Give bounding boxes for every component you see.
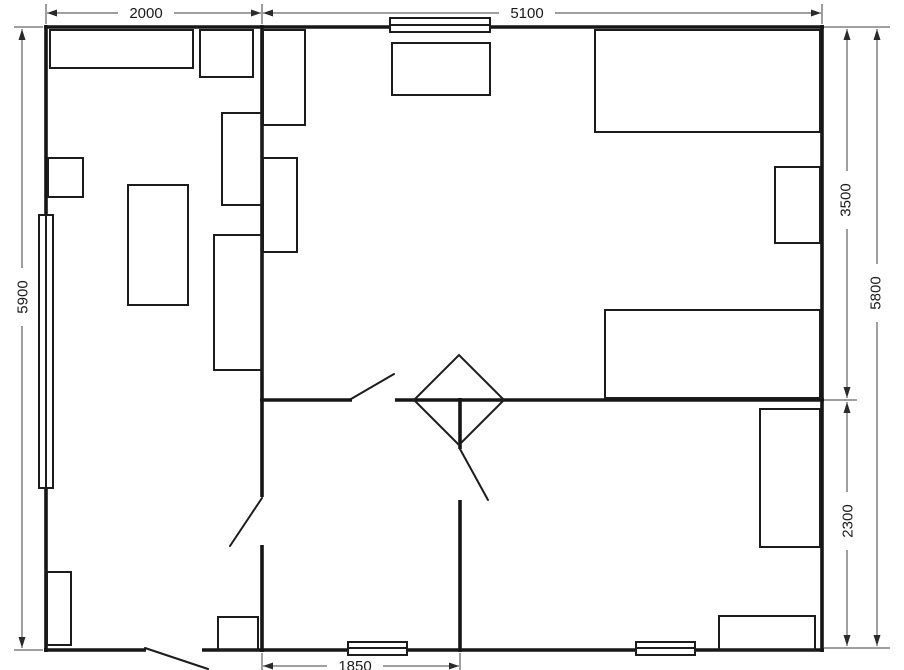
dimension-label-right-upper: 3500	[838, 183, 855, 216]
furniture-rect	[605, 310, 820, 398]
furniture-rect	[48, 158, 83, 197]
furniture-rect	[47, 572, 71, 645]
arrowhead	[47, 10, 57, 17]
dimension-label-bottom: 1850	[338, 658, 371, 670]
arrowhead	[874, 635, 881, 646]
door-leaf-entrance	[145, 648, 208, 669]
furniture-rect	[263, 158, 297, 252]
windows	[39, 18, 695, 655]
floor-plan-canvas: 2000 5100 5900 3500 2300 5800 1850	[0, 0, 904, 670]
furniture-rect	[218, 617, 258, 650]
arrowhead	[844, 387, 851, 398]
dimensions: 2000 5100 5900 3500 2300 5800 1850	[14, 4, 890, 670]
arrowhead	[844, 402, 851, 413]
arrowhead	[844, 29, 851, 40]
dimension-label-top-left: 2000	[129, 5, 162, 22]
arrowhead	[449, 663, 459, 670]
furniture-rect	[719, 616, 815, 650]
furniture-rect	[50, 30, 193, 68]
arrowhead	[263, 663, 273, 670]
arrowhead	[19, 29, 26, 40]
dimension-label-left: 5900	[15, 280, 32, 313]
arrowhead	[811, 10, 821, 17]
dimension-label-right-lower: 2300	[840, 504, 857, 537]
furniture-rect	[760, 409, 820, 547]
dimension-label-top-right: 5100	[510, 5, 543, 22]
furniture-rect	[392, 43, 490, 95]
door-leaf-hall	[460, 449, 488, 500]
arrowhead	[251, 10, 261, 17]
furniture-rect	[214, 235, 262, 370]
door-leaf-room-divider	[351, 374, 394, 399]
doors	[145, 355, 504, 669]
furniture-rect	[263, 30, 305, 125]
floor-plan-drawing: 2000 5100 5900 3500 2300 5800 1850	[0, 0, 904, 670]
furniture-rect	[595, 30, 820, 132]
furniture	[47, 30, 820, 650]
door-leaf-left-room	[230, 498, 262, 546]
furniture-rect	[200, 30, 253, 77]
furniture-rect	[222, 113, 262, 205]
arrowhead	[844, 635, 851, 646]
furniture-rect	[775, 167, 820, 243]
furniture-rect	[128, 185, 188, 305]
arrowhead	[19, 637, 26, 648]
dimension-label-right-total: 5800	[868, 276, 885, 309]
arrowhead	[263, 10, 273, 17]
walls	[44, 25, 824, 652]
arrowhead	[874, 29, 881, 40]
